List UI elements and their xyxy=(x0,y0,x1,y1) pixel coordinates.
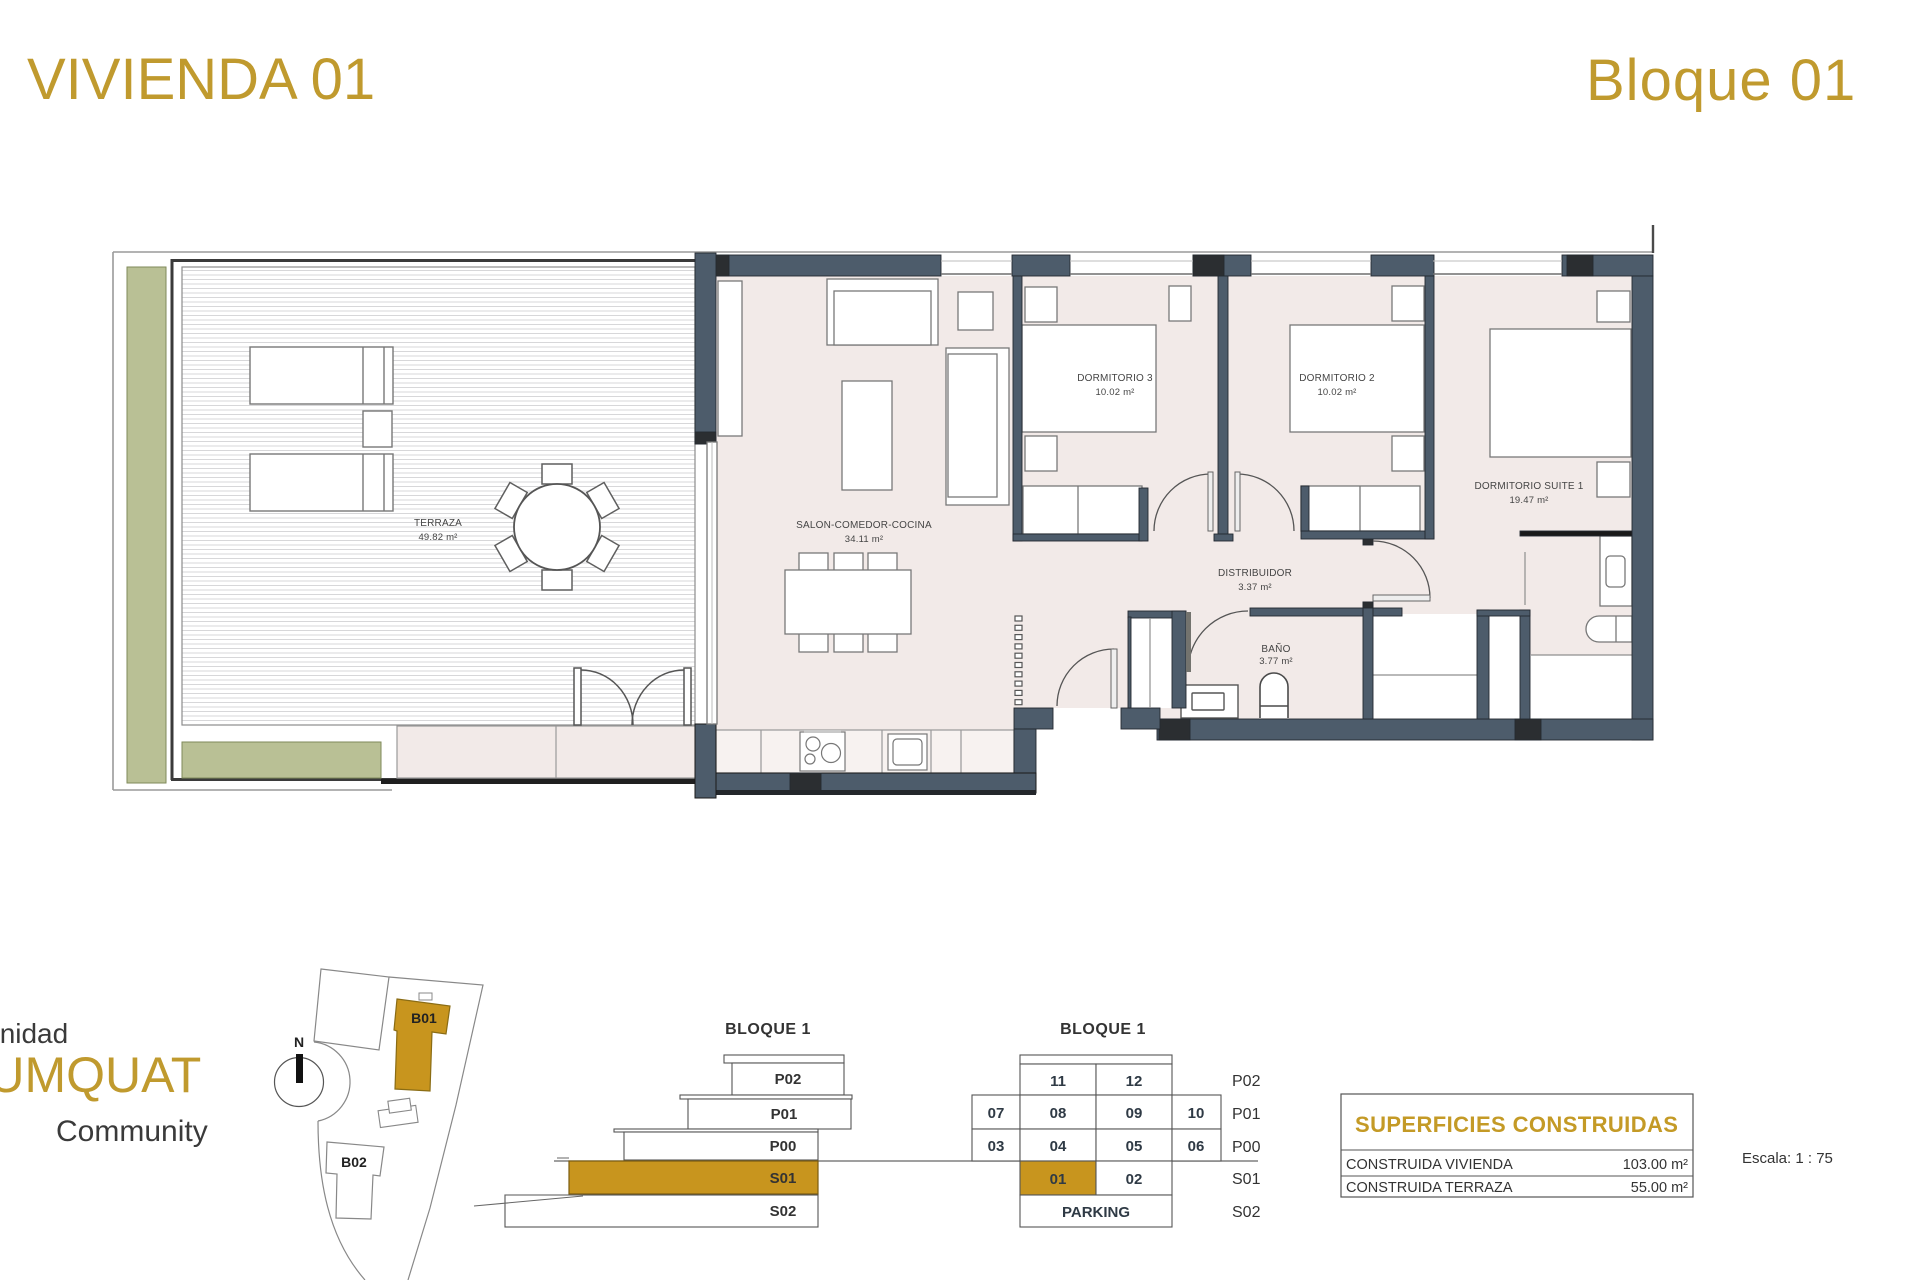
svg-text:Comunidad: Comunidad xyxy=(0,1018,68,1049)
svg-text:VIVIENDA 01: VIVIENDA 01 xyxy=(27,47,375,112)
svg-text:KUMQUAT: KUMQUAT xyxy=(0,1047,201,1103)
svg-text:3.37 m²: 3.37 m² xyxy=(1238,582,1272,593)
svg-text:DORMITORIO 3: DORMITORIO 3 xyxy=(1077,373,1153,384)
svg-text:03: 03 xyxy=(988,1138,1005,1155)
svg-text:09: 09 xyxy=(1126,1105,1143,1122)
svg-text:11: 11 xyxy=(1050,1073,1066,1090)
svg-text:CONSTRUIDA VIVIENDA: CONSTRUIDA VIVIENDA xyxy=(1346,1157,1513,1173)
svg-text:Community: Community xyxy=(56,1115,208,1148)
svg-text:DORMITORIO SUITE 1: DORMITORIO SUITE 1 xyxy=(1475,481,1584,492)
svg-text:19.47 m²: 19.47 m² xyxy=(1509,495,1548,506)
svg-text:49.82 m²: 49.82 m² xyxy=(418,532,457,543)
svg-text:P02: P02 xyxy=(775,1071,802,1088)
svg-text:08: 08 xyxy=(1050,1105,1067,1122)
svg-text:BLOQUE 1: BLOQUE 1 xyxy=(1060,1021,1146,1038)
svg-text:01: 01 xyxy=(1050,1171,1067,1188)
svg-text:B02: B02 xyxy=(341,1154,367,1170)
svg-text:02: 02 xyxy=(1126,1171,1143,1188)
svg-text:B01: B01 xyxy=(411,1010,437,1026)
svg-text:CONSTRUIDA TERRAZA: CONSTRUIDA TERRAZA xyxy=(1346,1180,1513,1196)
svg-text:S01: S01 xyxy=(1232,1171,1261,1188)
svg-text:P01: P01 xyxy=(771,1106,798,1123)
svg-text:34.11 m²: 34.11 m² xyxy=(845,534,883,545)
svg-text:SALON-COMEDOR-COCINA: SALON-COMEDOR-COCINA xyxy=(796,520,932,531)
svg-text:04: 04 xyxy=(1050,1138,1067,1155)
svg-text:P00: P00 xyxy=(770,1138,797,1155)
svg-text:PARKING: PARKING xyxy=(1062,1204,1130,1221)
svg-text:P02: P02 xyxy=(1232,1073,1261,1090)
svg-text:06: 06 xyxy=(1188,1138,1205,1155)
svg-text:3.77 m²: 3.77 m² xyxy=(1259,656,1293,667)
svg-text:DORMITORIO 2: DORMITORIO 2 xyxy=(1299,373,1375,384)
svg-text:DISTRIBUIDOR: DISTRIBUIDOR xyxy=(1218,568,1292,579)
svg-text:07: 07 xyxy=(988,1105,1005,1122)
svg-text:10: 10 xyxy=(1188,1105,1205,1122)
svg-text:P00: P00 xyxy=(1232,1139,1261,1156)
svg-text:12: 12 xyxy=(1126,1073,1143,1090)
svg-text:BAÑO: BAÑO xyxy=(1261,642,1290,655)
svg-text:P01: P01 xyxy=(1232,1106,1261,1123)
svg-text:BLOQUE 1: BLOQUE 1 xyxy=(725,1021,811,1038)
svg-text:N: N xyxy=(294,1034,304,1050)
svg-text:10.02 m²: 10.02 m² xyxy=(1095,387,1134,398)
svg-text:S02: S02 xyxy=(770,1203,797,1220)
svg-text:103.00 m²: 103.00 m² xyxy=(1623,1157,1688,1173)
svg-text:TERRAZA: TERRAZA xyxy=(414,518,462,529)
svg-text:S01: S01 xyxy=(770,1170,797,1187)
svg-text:Bloque 01: Bloque 01 xyxy=(1586,48,1856,113)
svg-text:05: 05 xyxy=(1126,1138,1143,1155)
svg-text:10.02 m²: 10.02 m² xyxy=(1317,387,1356,398)
svg-text:S02: S02 xyxy=(1232,1204,1261,1221)
svg-text:SUPERFICIES CONSTRUIDAS: SUPERFICIES CONSTRUIDAS xyxy=(1355,1112,1678,1137)
svg-text:Escala: 1 : 75: Escala: 1 : 75 xyxy=(1742,1150,1833,1167)
svg-text:55.00 m²: 55.00 m² xyxy=(1631,1180,1688,1196)
